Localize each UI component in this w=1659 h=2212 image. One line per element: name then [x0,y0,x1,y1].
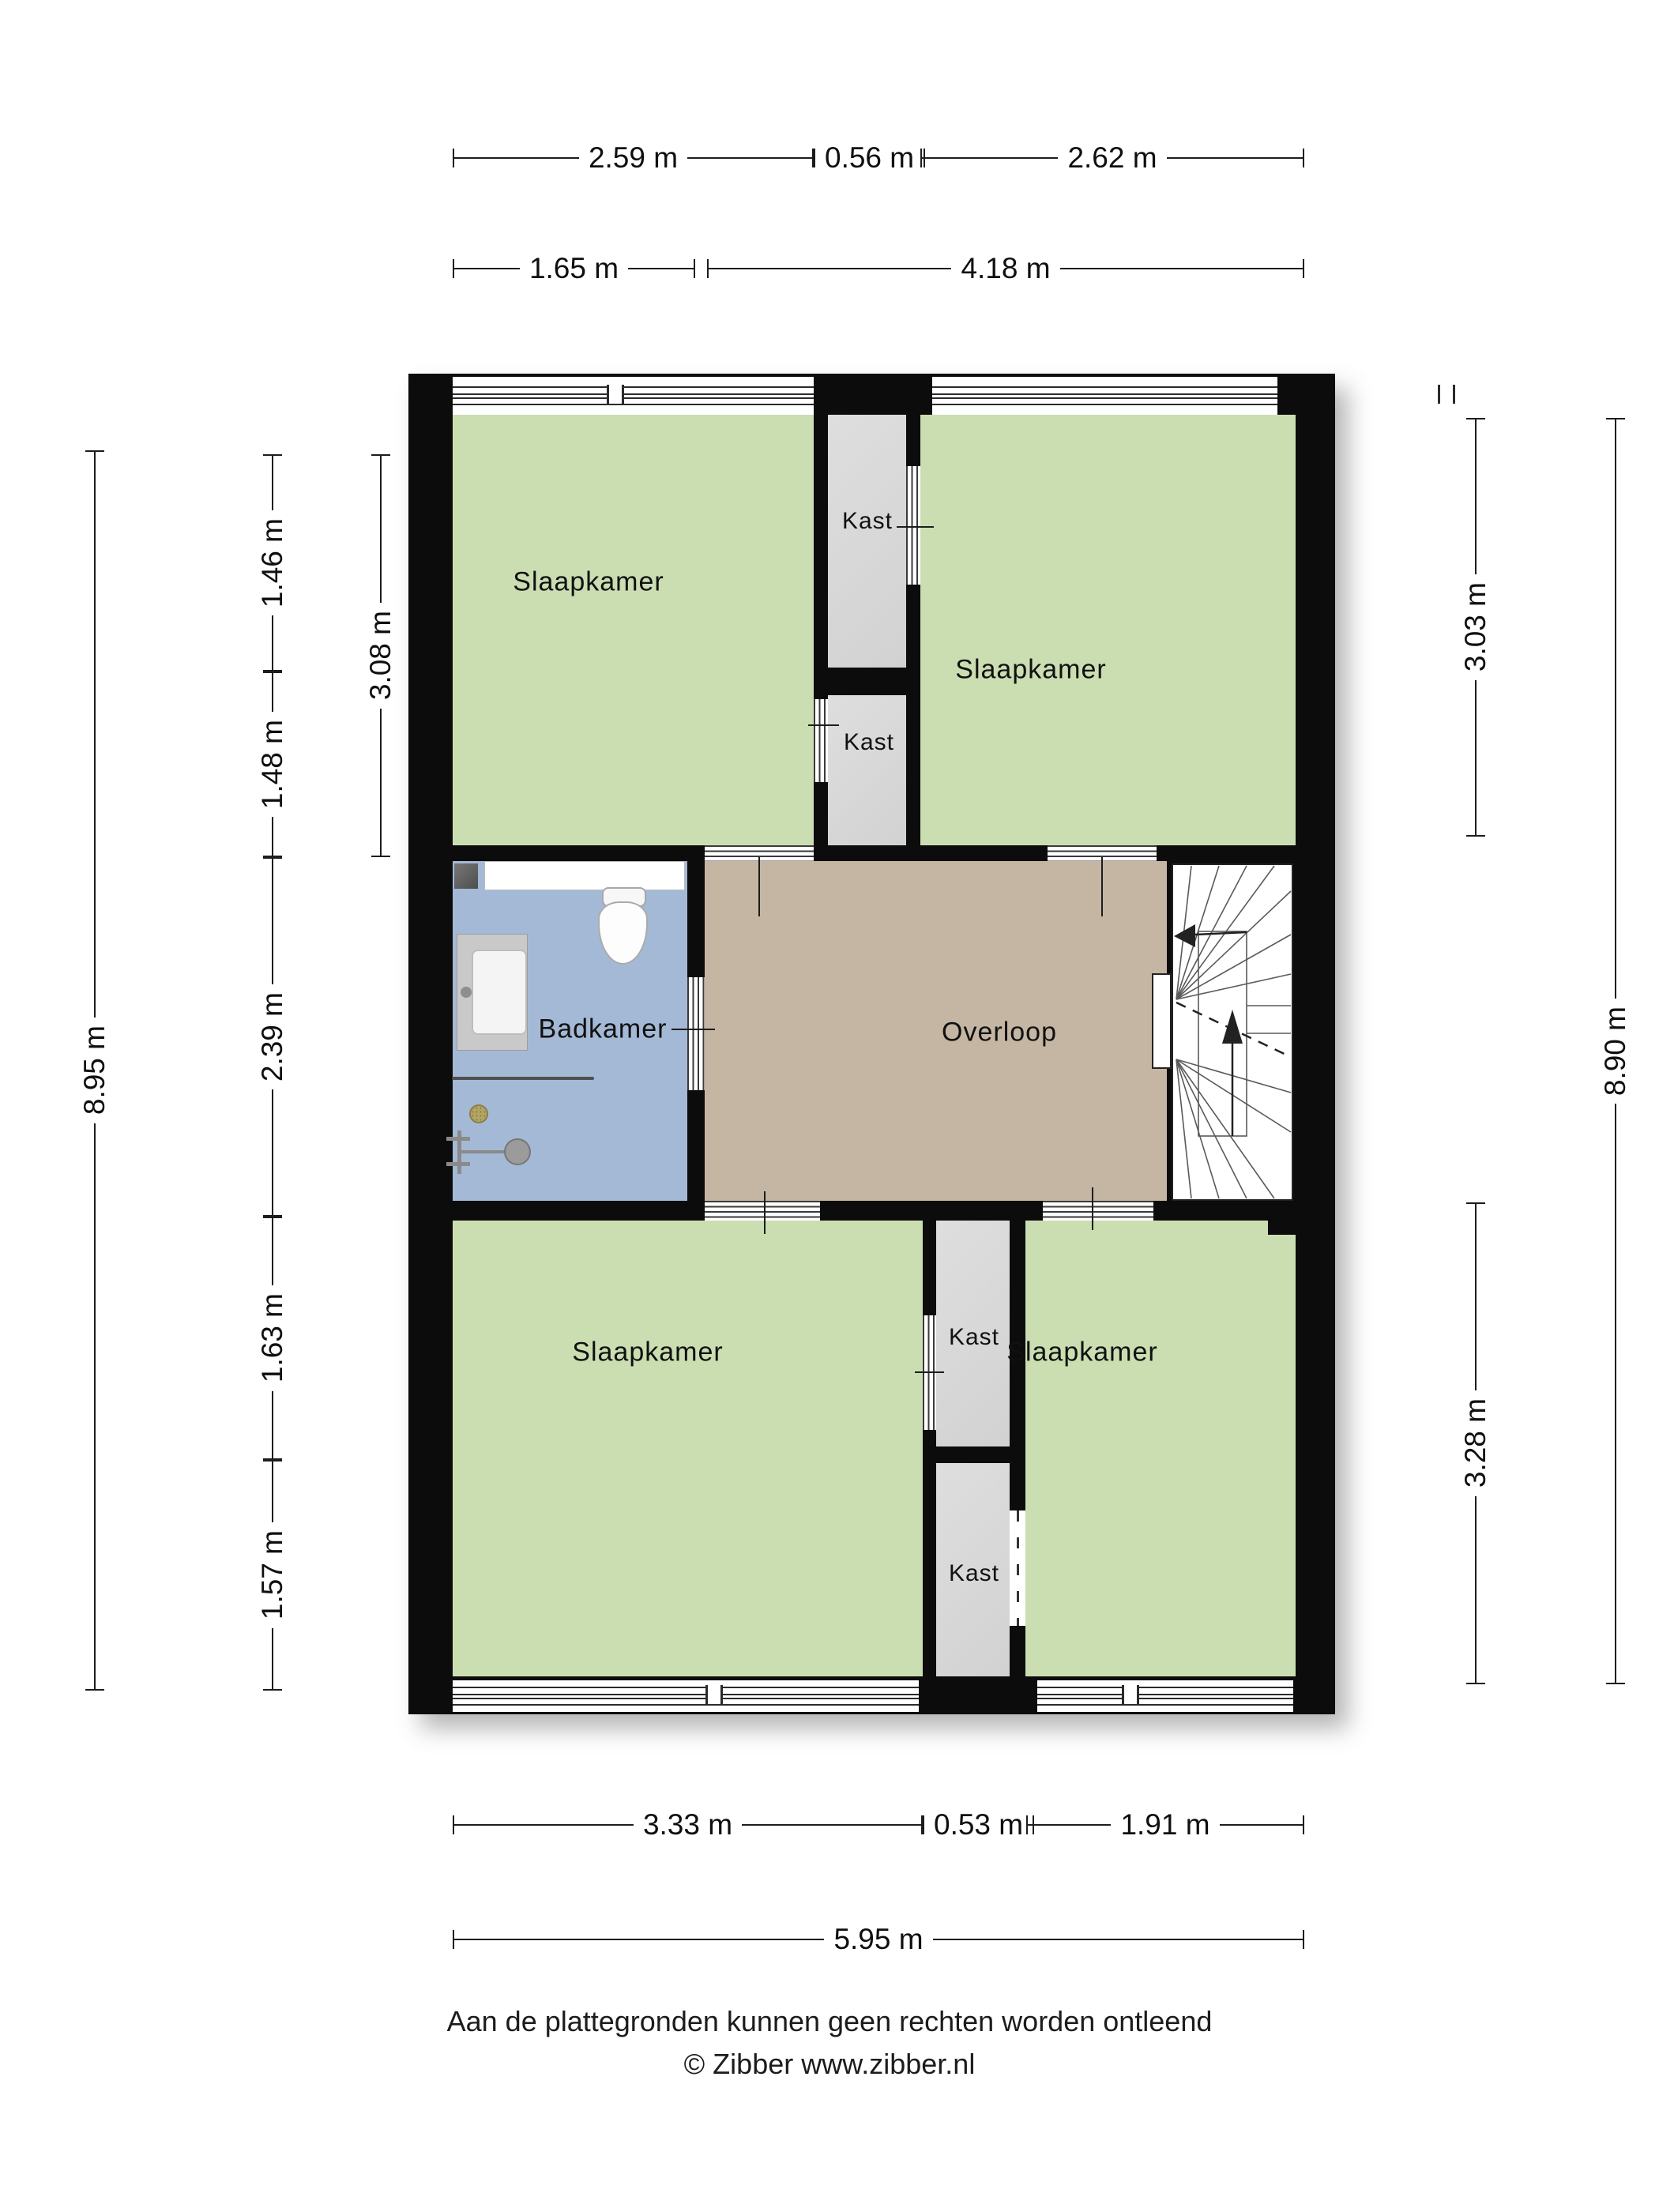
label-kast-top-upper: Kast [842,508,893,535]
footer-credit: © Zibber www.zibber.nl [0,2048,1659,2081]
dim-label: 8.90 m [1599,999,1632,1104]
dim-label: 1.63 m [256,1285,289,1390]
dim-bottom-3-33: 3.33 m [453,1815,923,1834]
label-overloop: Overloop [942,1018,1057,1048]
dim-label: 4.18 m [951,252,1059,285]
door-opening-landing-to-bottom-left [705,1201,820,1221]
room-slaapkamer-bottom-left [453,1221,923,1676]
dim-left-1-57: 1.57 m [263,1460,282,1691]
dim-label: 5.95 m [824,1923,932,1956]
door-swing-tick [808,724,839,726]
dim-right-8-90: 8.90 m [1606,418,1625,1684]
window-mullion [705,1685,723,1704]
dim-label: 1.48 m [256,712,289,817]
dim-top-4-18: 4.18 m [707,259,1304,278]
window-mullion [607,385,624,404]
door-swing-tick [915,1371,944,1373]
dim-left-1-48: 1.48 m [263,671,282,857]
stairs-rail [1152,973,1172,1069]
label-slaapkamer-bottom-left: Slaapkamer [572,1337,723,1368]
door-kast-top-lower [814,699,828,782]
dim-top-2-62: 2.62 m [920,149,1304,167]
wall-notch [1268,1221,1296,1235]
dim-right-3-28: 3.28 m [1466,1202,1485,1684]
dim-label: 8.95 m [78,1018,111,1123]
dim-label: 3.33 m [634,1808,742,1841]
dim-label: 2.59 m [579,141,687,175]
duct-block [454,863,478,889]
label-kast-bottom-upper: Kast [949,1324,999,1351]
dim-bottom-1-91: 1.91 m [1026,1815,1304,1834]
shower-mixer-handle [446,1162,470,1166]
window-mullion [1122,1685,1139,1704]
bathroom-counter [484,861,685,890]
towel-bar-icon [452,1077,594,1080]
dim-left-1-63: 1.63 m [263,1217,282,1460]
floorplan-page: 2.59 m 0.56 m 2.62 m 1.65 m 4.18 m 8.95 … [0,0,1659,2212]
label-kast-bottom-lower: Kast [949,1560,999,1587]
door-kast-top-upper [906,466,920,585]
door-badkamer [687,977,705,1090]
room-kast-top-upper [828,415,906,668]
dim-label: 0.56 m [815,141,924,175]
door-swing-tick [1101,857,1103,916]
dim-label: 1.65 m [520,252,628,285]
door-swing-tick [1092,1187,1093,1230]
label-slaapkamer-top-right: Slaapkamer [955,655,1106,686]
dim-left-2-39: 2.39 m [263,857,282,1217]
door-kast-bottom-lower [1010,1510,1025,1626]
window-top-right [932,377,1277,415]
window-mullion [1438,385,1455,404]
door-swing-tick [764,1191,766,1234]
dim-label: 1.91 m [1111,1808,1219,1841]
shower-drain-icon [469,1104,488,1123]
dim-top-2-59: 2.59 m [453,149,814,167]
room-slaapkamer-top-right [920,415,1296,845]
dim-label: 3.08 m [364,603,397,708]
label-slaapkamer-bottom-right: Slaapkamer [1006,1337,1157,1368]
dim-label: 0.53 m [924,1808,1033,1841]
dim-left-8-95: 8.95 m [85,450,104,1691]
window-bottom-right [1037,1680,1293,1712]
dim-bottom-5-95: 5.95 m [453,1930,1304,1949]
label-kast-top-lower: Kast [844,729,894,756]
label-badkamer: Badkamer [539,1014,668,1045]
room-overloop [705,861,1167,1201]
dim-label: 3.03 m [1459,574,1492,679]
stairs-icon [1172,863,1293,1201]
sink-basin-icon [472,950,527,1035]
room-slaapkamer-bottom-right [1025,1221,1296,1676]
door-swing-tick [758,857,760,916]
footer-disclaimer: Aan de plattegronden kunnen geen rechten… [0,2005,1659,2038]
room-kast-top-lower [828,695,906,845]
dim-label: 1.57 m [256,1522,289,1627]
shower-mixer-handle [446,1137,470,1141]
dim-bottom-0-53: 0.53 m [923,1815,1026,1834]
floorplan-building: Slaapkamer Slaapkamer Slaapkamer Slaapka… [408,374,1335,1714]
window-top-left [453,377,814,415]
dim-top-0-56: 0.56 m [814,149,920,167]
dim-label: 2.39 m [256,984,289,1089]
dim-left-1-46: 1.46 m [263,454,282,671]
window-bottom-left [453,1680,919,1712]
dim-label: 2.62 m [1058,141,1166,175]
label-leader-line [897,526,934,528]
dim-label: 3.28 m [1459,1390,1492,1495]
room-slaapkamer-top-left [453,415,814,845]
dim-left-3-08: 3.08 m [371,454,390,857]
dim-right-3-03: 3.03 m [1466,418,1485,837]
door-opening-landing-to-bottom-right [1043,1201,1153,1221]
label-leader-line [671,1029,715,1030]
shower-head-icon [504,1138,531,1165]
label-slaapkamer-top-left: Slaapkamer [513,567,664,598]
faucet-icon [461,987,472,998]
dim-label: 1.46 m [256,510,289,615]
dim-top-1-65: 1.65 m [453,259,695,278]
